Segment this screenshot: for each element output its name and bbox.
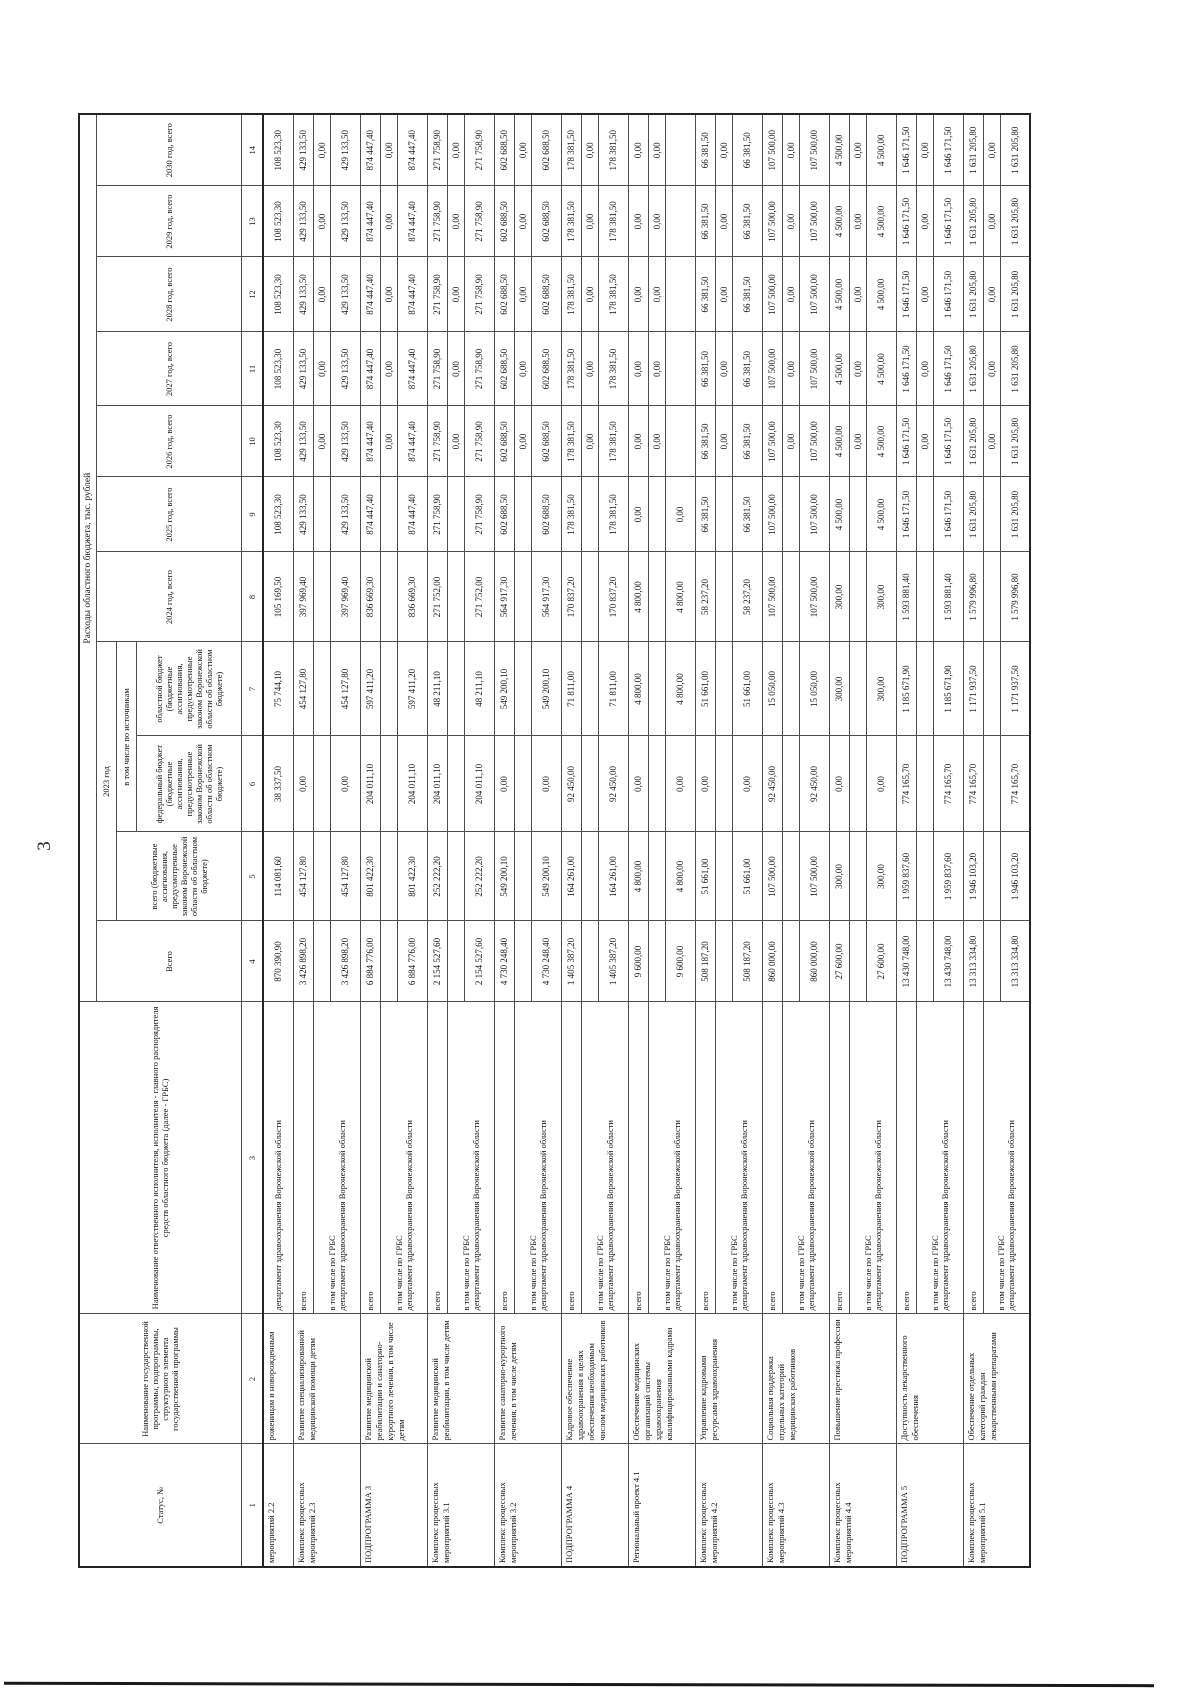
value-cell [648,552,665,642]
value-cell [380,642,397,736]
value-cell: 1 579 996,80 [963,552,983,642]
value-cell: 4 500,00 [866,332,896,406]
value-cell: 0,00 [715,332,732,406]
value-cell: 66 381,50 [695,332,715,406]
value-cell [313,552,330,642]
department-label: департамент здравоохранения Воронежской … [404,1006,414,1311]
value-cell: 429 133,50 [293,406,313,477]
department-label: департамент здравоохранения Воронежской … [471,1006,481,1311]
document-page: 3 Статус, №Наименование государственной … [0,0,1200,1691]
value-cell: 178 381,50 [561,114,581,186]
value-cell [849,642,866,736]
value-cell: 178 381,50 [598,114,628,186]
value-cell: 1 646 171,50 [933,257,963,332]
value-cell: 107 500,00 [762,552,782,642]
value-cell: 1 646 171,50 [933,477,963,552]
grbs-label: в том числе по ГРБС [528,1006,538,1311]
value-cell: 4 800,00 [628,552,648,642]
value-cell: 6 884 776,00 [360,921,380,1002]
value-cell: 71 811,00 [598,642,628,736]
program-cell: Развитие санаторно-курортного лечения, в… [494,1314,561,1444]
value-cell: 774 165,70 [896,736,916,832]
table-row-total: Региональный проект 4.1Обеспечение медиц… [628,114,648,1567]
status-cell: Комплекс процессных мероприятий 2.3 [293,1444,360,1567]
value-cell: 164 261,00 [598,832,628,921]
value-cell: 105 169,50 [263,552,293,642]
value-cell [849,477,866,552]
value-cell: 874 447,40 [397,332,427,406]
value-cell: 170 837,20 [561,552,581,642]
value-cell: 107 500,00 [762,186,782,257]
value-cell: 454 127,80 [293,832,313,921]
value-cell: 66 381,50 [732,257,762,332]
value-cell: 1 631 205,80 [963,406,983,477]
value-cell: 1 171 937,50 [1000,642,1030,736]
table-row-total: Комплекс процессных мероприятий 4.4Повыш… [829,114,849,1567]
table-row-total: Комплекс процессных мероприятий 4.2Управ… [695,114,715,1567]
value-cell: 107 500,00 [762,406,782,477]
value-cell: 4 800,00 [665,642,695,736]
value-cell: 108 523,30 [263,257,293,332]
value-cell: 15 050,00 [799,642,829,736]
value-cell: 836 669,30 [360,552,380,642]
value-cell: 1 946 103,20 [963,832,983,921]
value-cell: 66 381,50 [695,257,715,332]
value-cell: 178 381,50 [598,257,628,332]
executor-total-cell: всего [762,1002,782,1314]
value-cell: 66 381,50 [732,332,762,406]
status-cell: Комплекс процессных мероприятий 4.3 [762,1444,829,1567]
header-year: 2026 год, всего [96,406,241,477]
value-cell [447,477,464,552]
value-cell: 9 600,00 [628,921,648,1002]
value-cell: 549 200,10 [494,642,514,736]
value-cell: 300,00 [866,552,896,642]
value-cell: 66 381,50 [695,406,715,477]
column-number-row: 1234567891011121314 [241,114,263,1567]
value-cell: 108 523,30 [263,186,293,257]
value-cell: 58 237,20 [732,552,762,642]
value-cell: 429 133,50 [293,186,313,257]
table-row-partial: мероприятий 2.2роженицам и новорожденным… [263,114,293,1567]
value-cell: 1 646 171,50 [896,477,916,552]
executor-total-cell: всего [896,1002,916,1314]
value-cell: 0,00 [628,736,648,832]
value-cell: 13 313 334,80 [963,921,983,1002]
value-cell: 1 631 205,80 [1000,406,1030,477]
value-cell: 27 600,00 [866,921,896,1002]
column-number: 6 [241,736,263,832]
value-cell: 2 154 527,60 [464,921,494,1002]
value-cell: 4 500,00 [829,332,849,406]
value-cell: 204 011,10 [397,736,427,832]
value-cell [665,257,695,332]
grbs-label: в том числе по ГРБС [595,1006,605,1311]
column-number: 9 [241,477,263,552]
status-cell: ПОДПРОГРАММА 5 [896,1444,963,1567]
value-cell: 0,00 [983,186,1000,257]
header-federal-budget: федеральный бюджет (бюджетные ассигнован… [136,736,241,832]
value-cell: 0,00 [782,186,799,257]
value-cell: 51 661,00 [695,832,715,921]
table-row-total: Комплекс процессных мероприятий 4.3Социа… [762,114,782,1567]
value-cell: 0,00 [866,736,896,832]
column-number: 2 [241,1314,263,1444]
value-cell: 1 593 881,40 [933,552,963,642]
department-label: департамент здравоохранения Воронежской … [605,1006,615,1311]
value-cell [715,477,732,552]
value-cell: 774 165,70 [963,736,983,832]
value-cell: 564 917,30 [531,552,561,642]
value-cell: 0,00 [628,186,648,257]
value-cell: 1 959 837,60 [933,832,963,921]
value-cell [581,477,598,552]
value-cell: 0,00 [849,186,866,257]
value-cell: 107 500,00 [762,114,782,186]
value-cell: 178 381,50 [598,406,628,477]
status-cell: Комплекс процессных мероприятий 3.1 [427,1444,494,1567]
program-cell: Управление кадровыми ресурсами здравоохр… [695,1314,762,1444]
executor-grbs-cell: в том числе по ГРБСдепартамент здравоохр… [983,1002,1030,1314]
value-cell [715,921,732,1002]
page-number: 3 [34,834,62,858]
value-cell: 271 758,90 [427,257,447,332]
value-cell: 108 523,30 [263,332,293,406]
column-number: 4 [241,921,263,1002]
value-cell: 602 688,50 [494,406,514,477]
value-cell: 66 381,50 [732,186,762,257]
value-cell: 51 661,00 [695,642,715,736]
value-cell: 801 422,30 [397,832,427,921]
value-cell: 0,00 [849,406,866,477]
value-cell: 0,00 [380,257,397,332]
value-cell: 107 500,00 [799,186,829,257]
value-cell: 429 133,50 [330,406,360,477]
value-cell: 92 450,00 [799,736,829,832]
executor-grbs-cell: в том числе по ГРБСдепартамент здравоохр… [648,1002,695,1314]
grbs-label: в том числе по ГРБС [796,1006,806,1311]
value-cell [665,186,695,257]
value-cell: 4 500,00 [829,257,849,332]
header-program: Наименование государственной программы, … [79,1314,241,1444]
value-cell [665,114,695,186]
value-cell: 0,00 [665,736,695,832]
budget-table: Статус, №Наименование государственной пр… [78,113,1031,1568]
value-cell: 51 661,00 [732,832,762,921]
department-label: департамент здравоохранения Воронежской … [806,1006,816,1311]
value-cell: 0,00 [665,477,695,552]
value-cell: 0,00 [849,114,866,186]
value-cell [665,332,695,406]
program-cell: Повышение престижа профессии [829,1314,896,1444]
value-cell: 1 631 205,80 [963,186,983,257]
status-cell: Комплекс процессных мероприятий 5.1 [963,1444,1030,1567]
value-cell [581,736,598,832]
value-cell: 15 050,00 [762,642,782,736]
value-cell: 0,00 [732,736,762,832]
value-cell: 0,00 [447,114,464,186]
value-cell [447,921,464,1002]
value-cell: 300,00 [829,832,849,921]
header-executor: Наименование ответственного исполнителя,… [79,1002,241,1314]
value-cell: 1 646 171,50 [896,332,916,406]
value-cell: 429 133,50 [330,332,360,406]
program-cell: Развитие медицинской реабилитации, в том… [427,1314,494,1444]
value-cell: 75 744,10 [263,642,293,736]
value-cell [380,921,397,1002]
value-cell: 51 661,00 [732,642,762,736]
value-cell: 4 500,00 [866,406,896,477]
value-cell: 0,00 [628,332,648,406]
value-cell: 13 313 334,80 [1000,921,1030,1002]
column-number: 13 [241,186,263,257]
value-cell: 1 171 937,50 [963,642,983,736]
value-cell [514,832,531,921]
executor-grbs-cell: в том числе по ГРБСдепартамент здравоохр… [782,1002,829,1314]
value-cell: 170 837,20 [598,552,628,642]
table-row-total: ПОДПРОГРАММА 3Развитие медицинской реаби… [360,114,380,1567]
value-cell: 0,00 [581,114,598,186]
value-cell [983,477,1000,552]
value-cell: 0,00 [628,406,648,477]
status-cell: ПОДПРОГРАММА 4 [561,1444,628,1567]
value-cell: 602 688,50 [531,406,561,477]
value-cell: 4 500,00 [866,257,896,332]
value-cell [849,832,866,921]
value-cell: 602 688,50 [494,332,514,406]
value-cell: 4 800,00 [665,832,695,921]
value-cell: 1 646 171,50 [896,257,916,332]
value-cell [782,552,799,642]
value-cell: 0,00 [514,257,531,332]
value-cell [514,642,531,736]
value-cell [983,552,1000,642]
value-cell: 0,00 [648,332,665,406]
value-cell: 0,00 [648,114,665,186]
grbs-label: в том числе по ГРБС [394,1006,404,1311]
value-cell: 0,00 [293,736,313,832]
grbs-label: в том числе по ГРБС [729,1006,739,1311]
value-cell: 1 579 996,80 [1000,552,1030,642]
value-cell: 92 450,00 [762,736,782,832]
value-cell: 204 011,10 [464,736,494,832]
value-cell: 0,00 [380,186,397,257]
value-cell [715,552,732,642]
value-cell [514,921,531,1002]
value-cell: 271 752,00 [427,552,447,642]
value-cell [581,832,598,921]
scan-artifact-line [4,1682,1154,1687]
value-cell: 3 426 898,20 [293,921,313,1002]
department-label: департамент здравоохранения Воронежской … [873,1006,883,1311]
table-row-total: Комплекс процессных мероприятий 3.1Разви… [427,114,447,1567]
value-cell: 429 133,50 [330,257,360,332]
value-cell: 508 187,20 [695,921,715,1002]
value-cell: 107 500,00 [799,114,829,186]
value-cell: 108 523,30 [263,114,293,186]
value-cell: 108 523,30 [263,406,293,477]
value-cell: 429 133,50 [293,257,313,332]
value-cell [916,642,933,736]
value-cell: 66 381,50 [695,114,715,186]
executor-total-cell: всего [427,1002,447,1314]
department-label: департамент здравоохранения Воронежской … [940,1006,950,1311]
value-cell: 1 646 171,50 [933,186,963,257]
executor-grbs-cell: в том числе по ГРБСдепартамент здравоохр… [916,1002,963,1314]
value-cell [514,477,531,552]
grbs-label: в том числе по ГРБС [996,1006,1006,1311]
value-cell: 107 500,00 [799,257,829,332]
grbs-label: в том числе по ГРБС [461,1006,471,1311]
value-cell: 874 447,40 [397,406,427,477]
header-2023-total: всего (бюджетные ассигнования, предусмот… [116,832,241,921]
value-cell: 0,00 [715,406,732,477]
value-cell: 874 447,40 [360,332,380,406]
value-cell: 0,00 [380,114,397,186]
value-cell [782,921,799,1002]
value-cell: 0,00 [916,406,933,477]
program-cell: Обеспечение отдельных категорий граждан … [963,1314,1030,1444]
grbs-label: в том числе по ГРБС [863,1006,873,1311]
value-cell: 107 500,00 [762,832,782,921]
column-number: 12 [241,257,263,332]
table-row-total: ПОДПРОГРАММА 4Кадровое обеспечение здрав… [561,114,581,1567]
value-cell: 0,00 [715,114,732,186]
value-cell: 92 450,00 [598,736,628,832]
value-cell [715,832,732,921]
value-cell: 0,00 [916,186,933,257]
value-cell: 300,00 [866,832,896,921]
value-cell: 454 127,80 [330,642,360,736]
grbs-label: в том числе по ГРБС [327,1006,337,1311]
value-cell: 4 500,00 [829,186,849,257]
value-cell: 4 500,00 [829,114,849,186]
value-cell [380,477,397,552]
value-cell: 602 688,50 [494,186,514,257]
value-cell [916,921,933,1002]
value-cell [380,552,397,642]
value-cell [782,832,799,921]
value-cell: 0,00 [313,186,330,257]
value-cell [983,736,1000,832]
header-year-2023: 2023 год [96,642,116,921]
value-cell [514,552,531,642]
value-cell [313,921,330,1002]
header-year: 2030 год, всего [96,114,241,186]
executor-total-cell: всего [695,1002,715,1314]
value-cell: 602 688,50 [531,186,561,257]
value-cell: 860 000,00 [799,921,829,1002]
value-cell: 178 381,50 [598,186,628,257]
value-cell: 252 222,20 [427,832,447,921]
value-cell [648,832,665,921]
value-cell [916,477,933,552]
value-cell: 1 646 171,50 [896,406,916,477]
value-cell: 271 758,90 [464,186,494,257]
value-cell: 0,00 [514,332,531,406]
value-cell: 1 631 205,80 [963,332,983,406]
status-cell: Комплекс процессных мероприятий 4.2 [695,1444,762,1567]
value-cell: 1 405 387,20 [598,921,628,1002]
column-number: 1 [241,1444,263,1567]
value-cell: 0,00 [514,406,531,477]
rotated-table-inner: Статус, №Наименование государственной пр… [78,115,1033,1568]
grbs-label: в том числе по ГРБС [930,1006,940,1311]
value-cell: 597 411,20 [397,642,427,736]
table-row-total: ПОДПРОГРАММА 5Доступность лекарственного… [896,114,916,1567]
value-cell [380,736,397,832]
value-cell: 2 154 527,60 [427,921,447,1002]
header-year: 2028 год, всего [96,257,241,332]
value-cell: 0,00 [514,186,531,257]
value-cell: 1 631 205,80 [1000,186,1030,257]
value-cell: 0,00 [782,406,799,477]
value-cell: 107 500,00 [799,477,829,552]
executor-total-cell: всего [360,1002,380,1314]
value-cell: 602 688,50 [494,257,514,332]
value-cell: 271 758,90 [427,332,447,406]
value-cell: 107 500,00 [799,832,829,921]
executor-total-cell: всего [628,1002,648,1314]
value-cell: 870 390,90 [263,921,293,1002]
program-cell: роженицам и новорожденным [263,1314,293,1444]
value-cell [447,552,464,642]
value-cell: 178 381,50 [561,257,581,332]
value-cell: 164 261,00 [561,832,581,921]
value-cell: 0,00 [829,736,849,832]
value-cell: 874 447,40 [360,257,380,332]
value-cell: 271 758,90 [427,406,447,477]
value-cell: 300,00 [866,642,896,736]
value-cell: 774 165,70 [1000,736,1030,832]
value-cell: 1 185 671,90 [896,642,916,736]
value-cell: 508 187,20 [732,921,762,1002]
value-cell: 0,00 [648,406,665,477]
value-cell: 300,00 [829,552,849,642]
value-cell: 0,00 [380,332,397,406]
value-cell: 1 631 205,80 [963,257,983,332]
value-cell: 0,00 [695,736,715,832]
department-label: департамент здравоохранения Воронежской … [672,1006,682,1311]
value-cell [380,832,397,921]
value-cell [849,552,866,642]
value-cell: 48 211,10 [427,642,447,736]
value-cell: 564 917,30 [494,552,514,642]
value-cell: 1 646 171,50 [896,114,916,186]
value-cell: 13 430 748,00 [896,921,916,1002]
executor-grbs-cell: в том числе по ГРБСдепартамент здравоохр… [380,1002,427,1314]
value-cell: 271 758,90 [427,114,447,186]
value-cell [715,642,732,736]
value-cell [916,552,933,642]
executor-grbs-cell: в том числе по ГРБСдепартамент здравоохр… [514,1002,561,1314]
value-cell: 178 381,50 [561,406,581,477]
value-cell: 0,00 [782,257,799,332]
value-cell: 0,00 [581,186,598,257]
value-cell: 0,00 [380,406,397,477]
value-cell: 204 011,10 [427,736,447,832]
value-cell: 178 381,50 [561,186,581,257]
value-cell: 874 447,40 [360,477,380,552]
value-cell: 0,00 [313,406,330,477]
header-year: 2029 год, всего [96,186,241,257]
value-cell: 0,00 [983,406,1000,477]
header-year: 2024 год, всего [96,552,241,642]
value-cell [447,642,464,736]
value-cell [313,642,330,736]
value-cell [916,736,933,832]
value-cell: 6 884 776,00 [397,921,427,1002]
